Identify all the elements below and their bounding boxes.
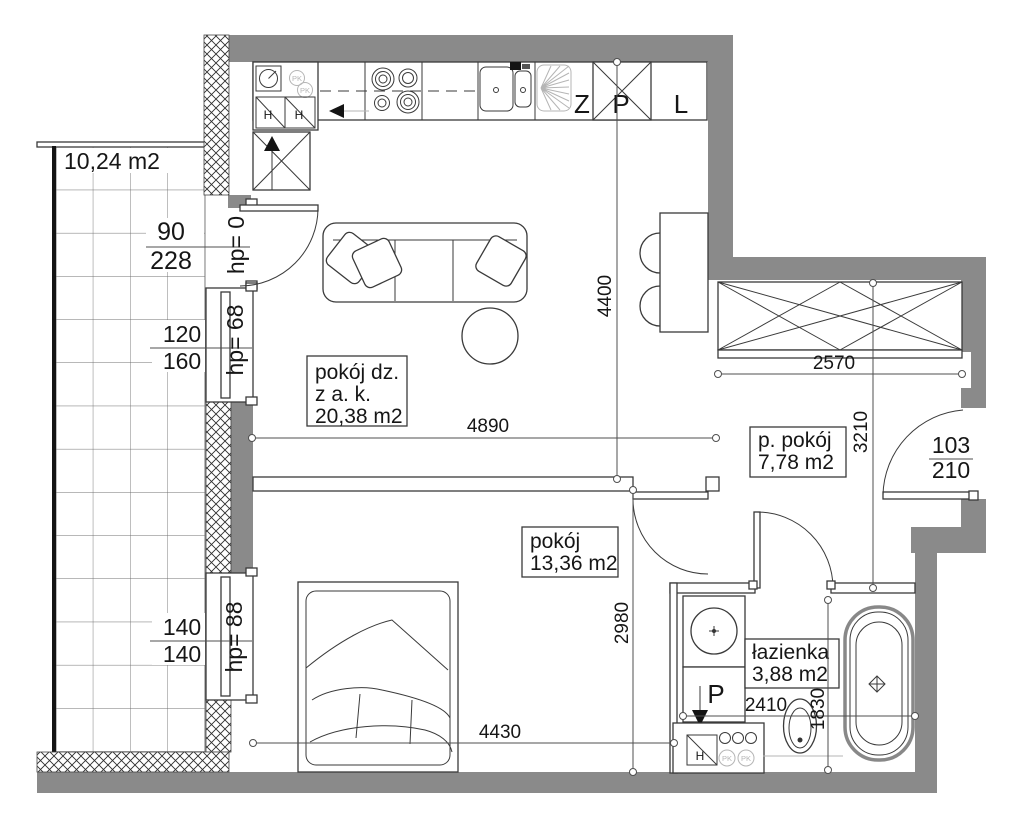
balcony-top-railing <box>37 142 205 147</box>
wardrobe <box>718 282 962 358</box>
bedroom-door-leaf <box>633 492 708 499</box>
pk-label: PK <box>722 754 732 763</box>
wall-right-step <box>911 527 986 553</box>
dim-1830: 1830 <box>808 688 829 730</box>
wall-bottom <box>37 772 937 793</box>
hatch-balcony-bottom <box>37 752 229 772</box>
hatch-left-top <box>204 35 229 195</box>
entrance-width: 103 <box>932 432 970 458</box>
pk-label: PK <box>300 86 310 95</box>
hall-name: p. pokój <box>758 429 832 452</box>
dim-4890: 4890 <box>467 416 509 437</box>
bathroom-wall-top-left <box>670 583 755 593</box>
pk-label: PK <box>292 74 302 83</box>
living-room-area: 20,38 m2 <box>315 405 403 428</box>
dim-3210: 3210 <box>851 411 872 453</box>
window-living-height: 160 <box>163 348 201 374</box>
entrance-height: 210 <box>932 457 970 483</box>
wall-left-mid <box>231 402 253 573</box>
washer-zone-label: P <box>612 89 629 119</box>
wall-right-upper <box>708 35 733 257</box>
bedroom-area: 13,36 m2 <box>530 552 618 575</box>
window-bedroom-height: 140 <box>163 641 201 667</box>
bathroom: P H PK PK <box>673 512 913 773</box>
pk-label: PK <box>741 754 751 763</box>
coffee-table <box>462 308 518 364</box>
wall-right-below-door <box>961 499 986 528</box>
balcony-door-hp: hp= 0 <box>223 216 249 274</box>
living-room-name: pokój dz. <box>315 361 399 384</box>
washing-machine-spot: P <box>683 667 745 726</box>
living-room: pokój dz. z a. k. 20,38 m2 <box>240 205 708 428</box>
dim-2980: 2980 <box>612 602 633 644</box>
faucet-icon <box>510 62 521 70</box>
sink-zone-label: Z <box>574 89 590 119</box>
bathroom-area: 3,88 m2 <box>752 663 828 686</box>
window-living-width: 120 <box>163 321 201 347</box>
bedroom-name: pokój <box>530 530 580 553</box>
washing-machine-label: P <box>707 679 724 709</box>
bathroom-door-swing <box>757 512 833 588</box>
bedroom-door-swing <box>633 499 708 574</box>
bathtub <box>845 607 913 760</box>
floor-plan: 10,24 m2 <box>0 0 1024 832</box>
cabinet-h-label: H <box>264 108 273 122</box>
fridge-zone-label: L <box>674 89 688 119</box>
wall-right-lower <box>915 553 937 793</box>
cabinet-h-label: H <box>295 108 304 122</box>
dim-2410: 2410 <box>745 695 787 716</box>
dim-2570: 2570 <box>813 353 855 374</box>
vanity-h-label: H <box>696 749 705 763</box>
balcony-door-height: 228 <box>150 247 192 275</box>
balcony-side-railing <box>52 146 56 752</box>
living-room-name2: z a. k. <box>315 383 371 406</box>
chair <box>640 286 660 326</box>
partition-stub <box>706 477 719 491</box>
hatch-left-mid <box>206 402 231 573</box>
bathroom-door-leaf <box>754 512 760 588</box>
bathroom-name: łazienka <box>752 641 829 664</box>
chair <box>640 233 660 273</box>
window-bedroom-width: 140 <box>163 614 201 640</box>
hallway: p. pokój 7,78 m2 103 210 <box>718 282 978 500</box>
partition-living-bedroom <box>253 477 633 491</box>
dim-4430: 4430 <box>479 722 521 743</box>
balcony-door-swing <box>240 208 318 286</box>
balcony-area-label: 10,24 m2 <box>64 148 160 174</box>
dining-table <box>640 213 708 332</box>
wall-top <box>228 35 733 62</box>
washbasin <box>683 596 745 667</box>
dim-4400: 4400 <box>595 275 616 317</box>
entrance-door-leaf <box>883 492 973 499</box>
balcony-door-width: 90 <box>157 218 185 246</box>
vanity-cabinet: H PK PK <box>673 723 764 773</box>
hatch-left-bottom <box>206 700 231 752</box>
floor-plan-drawing: 10,24 m2 <box>0 0 1024 832</box>
window-bedroom-hp: hp= 88 <box>221 602 247 673</box>
hall-area: 7,78 m2 <box>758 451 834 474</box>
wall-right-hall <box>961 278 986 408</box>
balcony-door-leaf <box>240 205 318 211</box>
sofa <box>323 223 528 302</box>
wall-upper-right-horizontal <box>708 257 986 280</box>
window-living-hp: hp= 68 <box>222 305 248 376</box>
kitchen: PK PK H H <box>253 62 707 190</box>
